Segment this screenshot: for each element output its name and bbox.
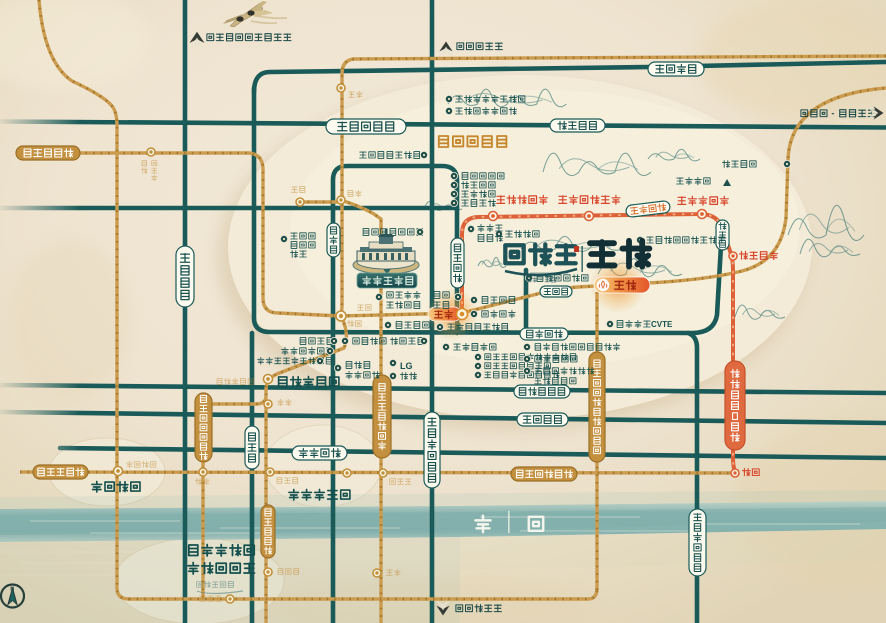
svg-text:N: N xyxy=(10,587,14,593)
svg-text:LG: LG xyxy=(400,361,413,371)
svg-text:CVTE: CVTE xyxy=(651,320,673,329)
